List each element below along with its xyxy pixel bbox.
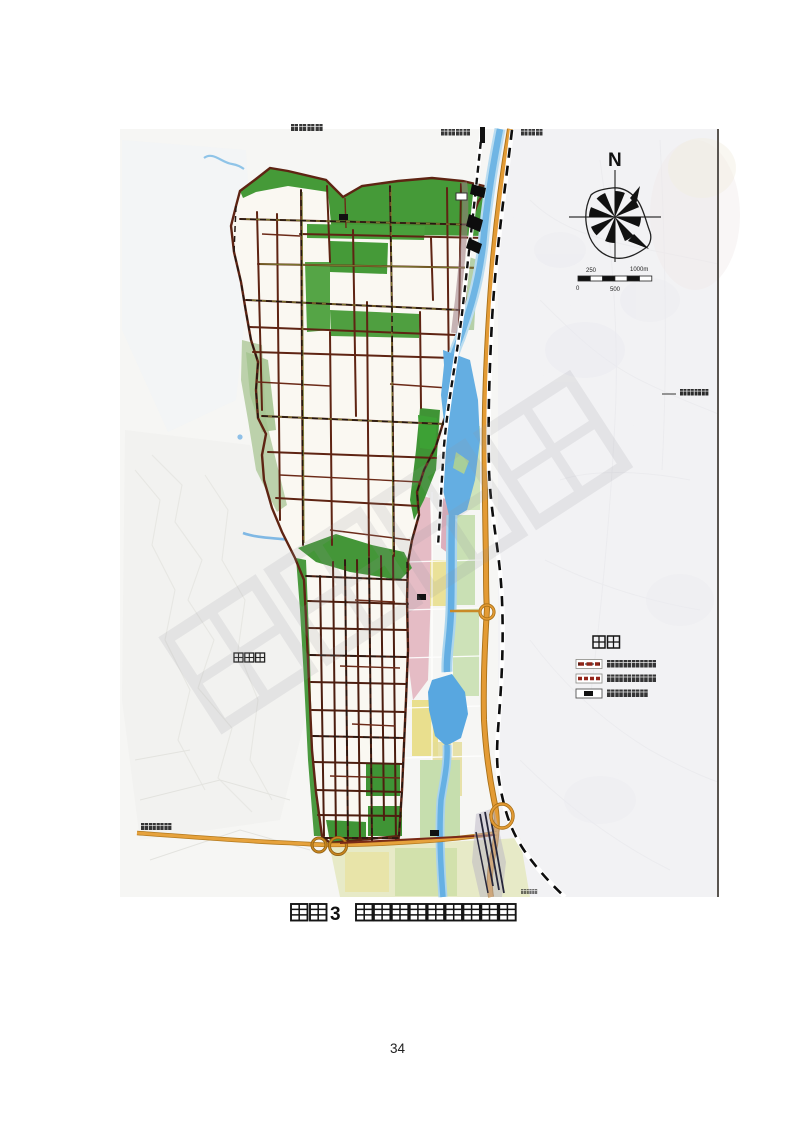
svg-text:500: 500 [610,287,621,293]
svg-text:250: 250 [586,268,597,274]
svg-text:34: 34 [390,1041,406,1056]
svg-text:1000m: 1000m [630,267,648,273]
svg-text:N: N [608,150,622,171]
svg-text:3: 3 [330,904,341,925]
